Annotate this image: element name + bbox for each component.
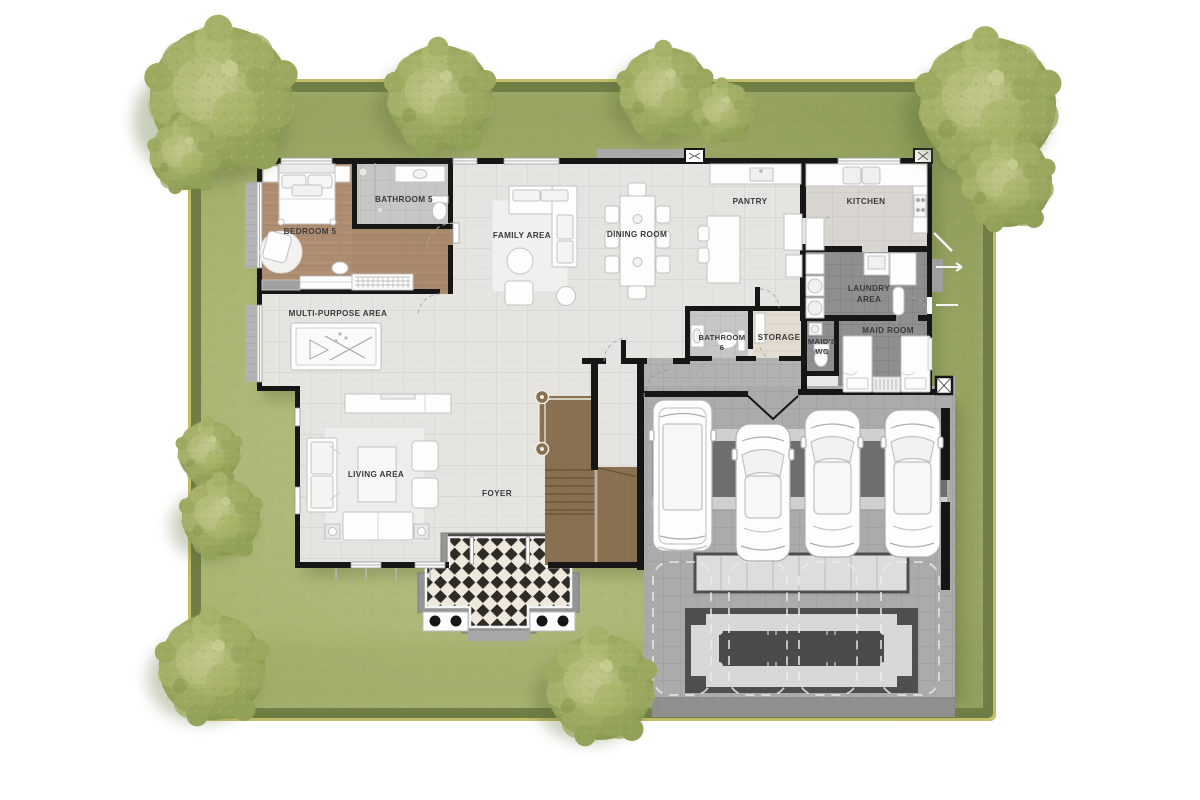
- svg-text:MULTI-PURPOSE AREA: MULTI-PURPOSE AREA: [289, 309, 388, 318]
- svg-text:BATHROOM: BATHROOM: [699, 333, 746, 342]
- svg-text:6: 6: [720, 343, 725, 352]
- svg-text:BEDROOM 5: BEDROOM 5: [284, 227, 337, 236]
- svg-text:LAUNDRY: LAUNDRY: [848, 284, 890, 293]
- svg-text:MAID ROOM: MAID ROOM: [862, 326, 914, 335]
- svg-text:PANTRY: PANTRY: [733, 197, 768, 206]
- svg-text:FOYER: FOYER: [482, 489, 512, 498]
- svg-text:DINING ROOM: DINING ROOM: [607, 230, 667, 239]
- svg-text:BATHROOM 5: BATHROOM 5: [375, 195, 433, 204]
- svg-text:MAID'S: MAID'S: [808, 337, 836, 346]
- svg-text:WC: WC: [815, 347, 829, 356]
- svg-text:KITCHEN: KITCHEN: [847, 197, 886, 206]
- svg-text:FAMILY AREA: FAMILY AREA: [493, 231, 551, 240]
- svg-text:AREA: AREA: [857, 295, 882, 304]
- svg-text:LIVING AREA: LIVING AREA: [348, 470, 404, 479]
- svg-text:STORAGE: STORAGE: [758, 333, 801, 342]
